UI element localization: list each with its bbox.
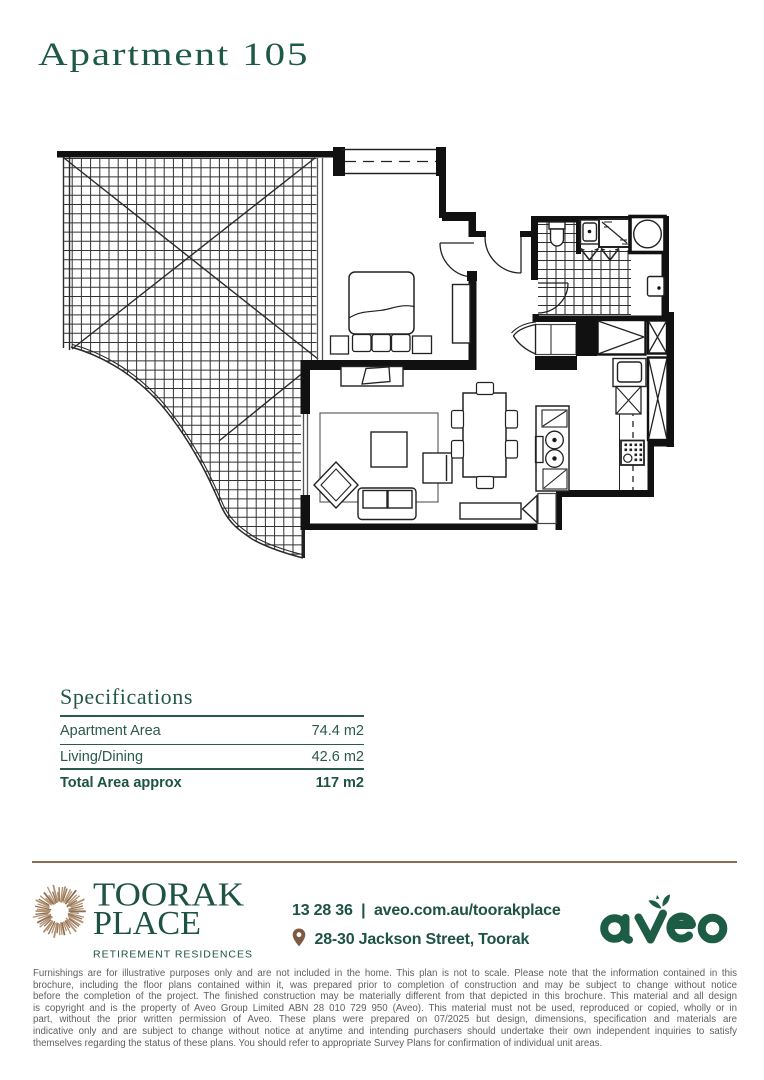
svg-text:RETIREMENT RESIDENCES: RETIREMENT RESIDENCES [93, 949, 252, 961]
svg-text:PLACE: PLACE [93, 905, 201, 942]
